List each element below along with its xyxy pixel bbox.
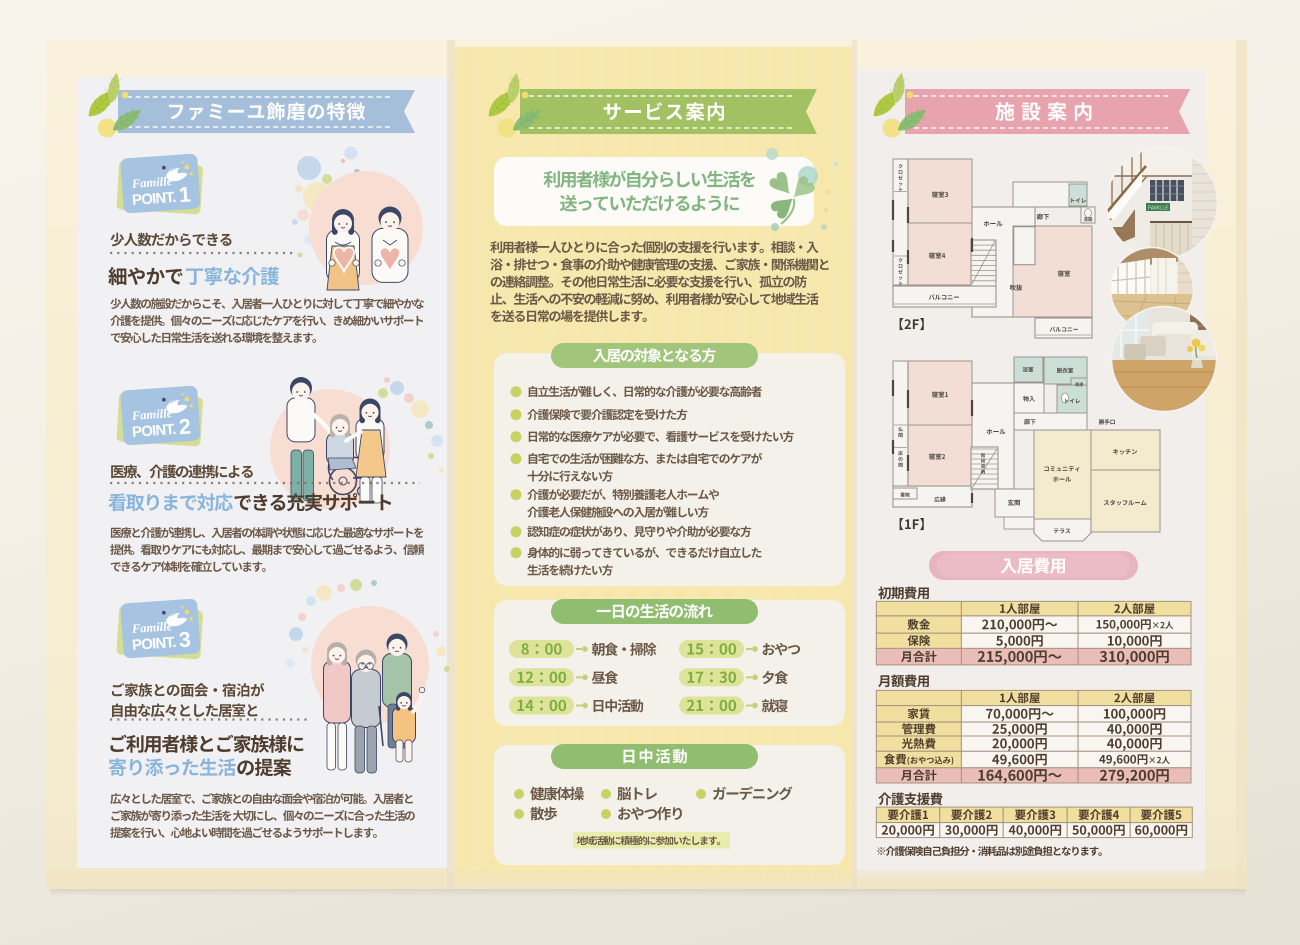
svg-text:3: 3 — [178, 627, 192, 652]
svg-text:POINT.: POINT. — [131, 634, 176, 654]
svg-text:POINT.: POINT. — [131, 189, 176, 209]
svg-text:2: 2 — [178, 414, 192, 439]
svg-text:1: 1 — [178, 182, 192, 207]
svg-text:FAMILLE: FAMILLE — [1148, 206, 1169, 212]
svg-text:POINT.: POINT. — [131, 421, 176, 441]
